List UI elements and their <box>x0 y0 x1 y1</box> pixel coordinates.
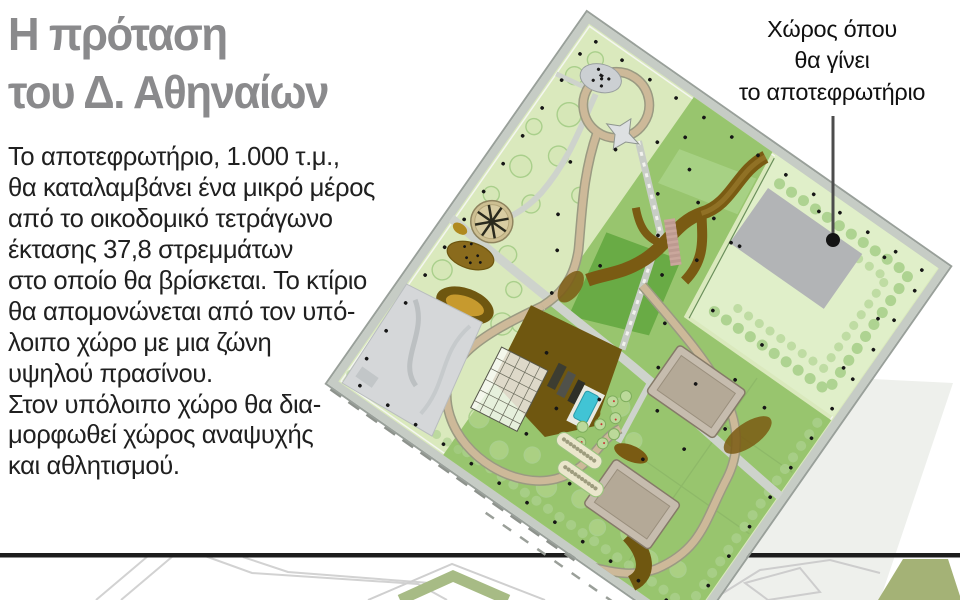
infographic: Η πρόταση του Δ. Αθηναίων Το αποτεφρωτήρ… <box>0 0 960 600</box>
callout-label: Χώρος όπου θα γίνει το αποτεφρωτήριο <box>700 14 960 108</box>
section-divider <box>0 553 960 558</box>
body-text: Το αποτεφρωτήριο, 1.000 τ.μ., θα καταλαμ… <box>8 141 375 481</box>
page-title: Η πρόταση του Δ. Αθηναίων <box>8 6 328 122</box>
callout-pointer-dot <box>826 233 840 247</box>
